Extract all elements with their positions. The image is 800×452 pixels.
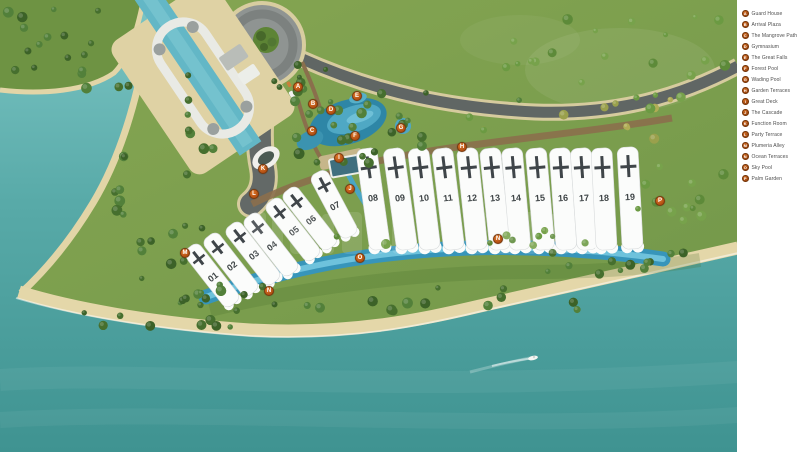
legend-label: Gymnasium: [752, 44, 780, 50]
tree-icon: [125, 82, 133, 90]
tree-icon: [185, 111, 191, 117]
tree-icon: [11, 66, 19, 74]
tree-icon: [3, 7, 14, 18]
tree-icon: [31, 65, 37, 71]
tree-icon: [565, 262, 572, 269]
tree-icon: [695, 195, 705, 205]
tree-icon: [227, 324, 232, 329]
map-marker-E-4: E: [352, 91, 362, 101]
tree-icon: [121, 153, 128, 160]
tree-icon: [718, 169, 728, 179]
tree-icon: [317, 106, 325, 114]
tree-icon: [185, 127, 193, 135]
map-marker-I-8: I: [334, 153, 344, 163]
tree-icon: [612, 100, 618, 106]
tree-icon: [648, 59, 657, 68]
tree-icon: [209, 144, 218, 153]
building-number: 17: [579, 193, 590, 204]
tree-icon: [115, 185, 124, 194]
tree-icon: [292, 133, 301, 142]
tree-icon: [633, 95, 639, 101]
tree-icon: [95, 8, 101, 14]
legend-label: Palm Garden: [752, 176, 783, 182]
legend: AGuard HouseBArrival PlazaCThe Mangrove …: [737, 0, 800, 452]
tree-icon: [305, 110, 313, 118]
tree-icon: [595, 269, 604, 278]
building-number: 19: [625, 192, 636, 203]
site-map-illustration: 01020304050607080910111213141516171819: [0, 0, 738, 452]
tree-icon: [364, 158, 374, 168]
legend-badge-G: G: [742, 76, 749, 83]
tree-icon: [271, 78, 277, 84]
tree-icon: [701, 56, 709, 64]
map-marker-N-14: N: [493, 234, 503, 244]
tree-icon: [417, 132, 427, 142]
legend-item-N: NOcean Terraces: [742, 151, 800, 162]
legend-badge-F: F: [742, 65, 749, 72]
tree-icon: [420, 298, 430, 308]
legend-label: The Cascade: [752, 110, 783, 116]
legend-badge-O: O: [742, 164, 749, 171]
tree-icon: [17, 12, 27, 22]
tree-icon: [679, 216, 687, 224]
tree-icon: [515, 61, 520, 66]
legend-badge-E: E: [742, 54, 749, 61]
legend-badge-D: D: [742, 43, 749, 50]
tree-icon: [688, 179, 696, 187]
tree-icon: [233, 307, 240, 314]
tree-icon: [211, 321, 221, 331]
building-number: 09: [394, 192, 405, 203]
legend-badge-P: P: [742, 175, 749, 182]
tree-icon: [216, 285, 227, 296]
map-marker-F-5: F: [350, 131, 360, 141]
legend-item-K: KFunction Room: [742, 118, 800, 129]
tree-icon: [114, 83, 123, 92]
tree-icon: [51, 7, 57, 13]
legend-badge-C: C: [742, 32, 749, 39]
tree-icon: [402, 298, 413, 309]
tree-icon: [635, 206, 641, 212]
legend-badge-M: M: [742, 142, 749, 149]
tree-icon: [500, 285, 507, 292]
tree-icon: [569, 298, 578, 307]
map-marker-L-11: L: [249, 189, 259, 199]
tree-icon: [168, 229, 178, 239]
tree-icon: [690, 205, 696, 211]
tree-icon: [334, 233, 340, 239]
tree-icon: [78, 67, 86, 75]
tree-icon: [480, 127, 487, 134]
tree-icon: [502, 63, 510, 71]
tree-icon: [185, 96, 193, 104]
tree-icon: [367, 296, 377, 306]
tree-icon: [290, 96, 300, 106]
tree-icon: [136, 238, 144, 246]
tree-icon: [359, 153, 366, 160]
tree-icon: [182, 294, 190, 302]
legend-label: Garden Terraces: [752, 88, 791, 94]
legend-badge-H: H: [742, 87, 749, 94]
map-marker-M-12: M: [180, 248, 190, 258]
tree-icon: [139, 276, 144, 281]
legend-item-J: JThe Cascade: [742, 107, 800, 118]
legend-label: Wading Pool: [752, 77, 781, 83]
tree-icon: [20, 24, 28, 32]
tree-icon: [314, 159, 321, 166]
legend-badge-I: I: [742, 98, 749, 105]
tree-icon: [323, 67, 328, 72]
legend-badge-N: N: [742, 153, 749, 160]
legend-item-I: IGreat Deck: [742, 96, 800, 107]
legend-item-E: EThe Great Falls: [742, 52, 800, 63]
tree-icon: [241, 291, 248, 298]
legend-item-G: GWading Pool: [742, 74, 800, 85]
tree-icon: [348, 123, 356, 131]
map-marker-P-16: P: [655, 196, 665, 206]
tree-icon: [645, 103, 655, 113]
map-marker-K-10: K: [258, 164, 268, 174]
legend-label: Plumeria Alley: [752, 143, 785, 149]
building-number: 10: [418, 192, 429, 203]
tree-icon: [628, 18, 636, 26]
tree-icon: [528, 58, 534, 64]
tree-icon: [82, 310, 87, 315]
map-marker-N-13: N: [264, 286, 274, 296]
tree-icon: [608, 257, 616, 265]
tree-icon: [641, 180, 650, 189]
tree-icon: [294, 148, 305, 159]
tree-icon: [44, 33, 52, 41]
tree-icon: [545, 269, 550, 274]
tree-icon: [196, 320, 206, 330]
tree-icon: [714, 15, 724, 25]
legend-label: Party Terrace: [752, 132, 783, 138]
tree-icon: [272, 301, 278, 307]
building-number: 15: [535, 193, 546, 204]
tree-icon: [36, 41, 43, 48]
tree-icon: [692, 14, 697, 19]
legend-item-B: BArrival Plaza: [742, 19, 800, 30]
tree-icon: [601, 53, 608, 60]
tree-icon: [423, 90, 429, 96]
tree-icon: [183, 170, 191, 178]
legend-label: Function Room: [752, 121, 787, 127]
tree-icon: [197, 302, 203, 308]
tree-icon: [294, 61, 302, 69]
tree-icon: [497, 293, 506, 302]
tree-icon: [574, 306, 581, 313]
legend-item-H: HGarden Terraces: [742, 85, 800, 96]
legend-label: Forest Pool: [752, 66, 779, 72]
tree-icon: [377, 89, 386, 98]
map-marker-A-0: A: [293, 82, 303, 92]
tree-icon: [81, 51, 88, 58]
legend-label: Great Deck: [752, 99, 778, 105]
tree-icon: [24, 47, 31, 54]
building-number: 08: [367, 192, 378, 203]
tree-icon: [600, 103, 608, 111]
tree-icon: [696, 211, 706, 221]
building-number: 14: [511, 193, 522, 204]
building-number: 16: [558, 193, 569, 204]
building-number: 11: [443, 192, 454, 203]
tree-icon: [417, 141, 427, 151]
tree-icon: [679, 248, 688, 257]
tree-icon: [202, 294, 210, 302]
tree-icon: [371, 148, 378, 155]
tree-icon: [676, 92, 686, 102]
tree-icon: [562, 14, 573, 25]
tree-icon: [166, 258, 177, 269]
tree-icon: [667, 250, 674, 257]
map-marker-H-7: H: [457, 142, 467, 152]
tree-icon: [388, 128, 397, 137]
tree-icon: [396, 113, 403, 120]
tree-icon: [117, 312, 124, 319]
tree-icon: [304, 302, 311, 309]
tree-icon: [199, 225, 206, 232]
tree-icon: [182, 223, 188, 229]
legend-badge-J: J: [742, 109, 749, 116]
tree-icon: [643, 259, 651, 267]
tree-icon: [435, 285, 440, 290]
tree-icon: [653, 92, 658, 97]
tree-icon: [315, 303, 325, 313]
tree-icon: [198, 290, 204, 296]
tree-icon: [667, 207, 677, 217]
tree-icon: [356, 108, 366, 118]
tree-icon: [65, 54, 72, 61]
tree-icon: [559, 110, 569, 120]
tree-icon: [330, 122, 337, 129]
tree-icon: [623, 123, 630, 130]
legend-label: Guard House: [752, 11, 783, 17]
tree-icon: [720, 60, 731, 71]
map-marker-J-9: J: [345, 184, 355, 194]
legend-item-L: LParty Terrace: [742, 129, 800, 140]
tree-icon: [88, 40, 94, 46]
map-marker-B-1: B: [308, 99, 318, 109]
tree-icon: [363, 101, 371, 109]
legend-item-F: FForest Pool: [742, 63, 800, 74]
tree-icon: [99, 321, 108, 330]
tree-icon: [145, 321, 155, 331]
legend-label: The Mangrove Path: [752, 33, 798, 39]
building-number: 18: [599, 193, 610, 204]
tree-icon: [386, 305, 396, 315]
tree-icon: [668, 97, 674, 103]
legend-badge-B: B: [742, 21, 749, 28]
tree-icon: [405, 118, 411, 124]
legend-list: AGuard HouseBArrival PlazaCThe Mangrove …: [742, 8, 800, 184]
tree-icon: [81, 83, 92, 94]
legend-item-P: PPalm Garden: [742, 173, 800, 184]
legend-item-D: DGymnasium: [742, 41, 800, 52]
legend-badge-K: K: [742, 120, 749, 127]
tree-icon: [548, 48, 557, 57]
legend-label: Arrival Plaza: [752, 22, 781, 28]
legend-badge-A: A: [742, 10, 749, 17]
tree-icon: [683, 203, 692, 212]
tree-icon: [578, 79, 584, 85]
tree-icon: [649, 134, 659, 144]
tree-icon: [656, 163, 663, 170]
legend-item-C: CThe Mangrove Path: [742, 30, 800, 41]
legend-badge-L: L: [742, 131, 749, 138]
legend-item-M: MPlumeria Alley: [742, 140, 800, 151]
tree-icon: [147, 237, 155, 245]
tree-icon: [185, 72, 191, 78]
tree-icon: [618, 268, 624, 274]
tree-icon: [593, 28, 598, 33]
legend-label: Sky Pool: [752, 165, 773, 171]
site-plan-screenshot: 01020304050607080910111213141516171819 A…: [0, 0, 800, 452]
tree-icon: [466, 113, 474, 121]
tree-icon: [516, 97, 522, 103]
tree-icon: [297, 75, 302, 80]
map-marker-C-2: C: [307, 126, 317, 136]
tree-icon: [487, 240, 493, 246]
legend-item-O: OSky Pool: [742, 162, 800, 173]
tree-icon: [114, 195, 125, 206]
map-marker-O-15: O: [355, 253, 365, 263]
building-number: 13: [489, 193, 500, 204]
tree-icon: [180, 257, 188, 265]
tree-icon: [137, 246, 146, 255]
legend-label: The Great Falls: [752, 55, 788, 61]
legend-item-A: AGuard House: [742, 8, 800, 19]
tree-icon: [120, 211, 127, 218]
map-marker-G-6: G: [396, 123, 406, 133]
tree-icon: [337, 135, 347, 145]
tree-icon: [483, 301, 493, 311]
tree-icon: [60, 32, 68, 40]
tree-icon: [663, 32, 668, 37]
tree-icon: [510, 38, 517, 45]
legend-label: Ocean Terraces: [752, 154, 789, 160]
tree-icon: [328, 99, 333, 104]
building-number: 12: [466, 193, 477, 204]
tree-icon: [687, 71, 696, 80]
tree-icon: [277, 84, 283, 90]
tree-icon: [199, 143, 210, 154]
map-marker-D-3: D: [326, 105, 336, 115]
tree-icon: [625, 260, 635, 270]
